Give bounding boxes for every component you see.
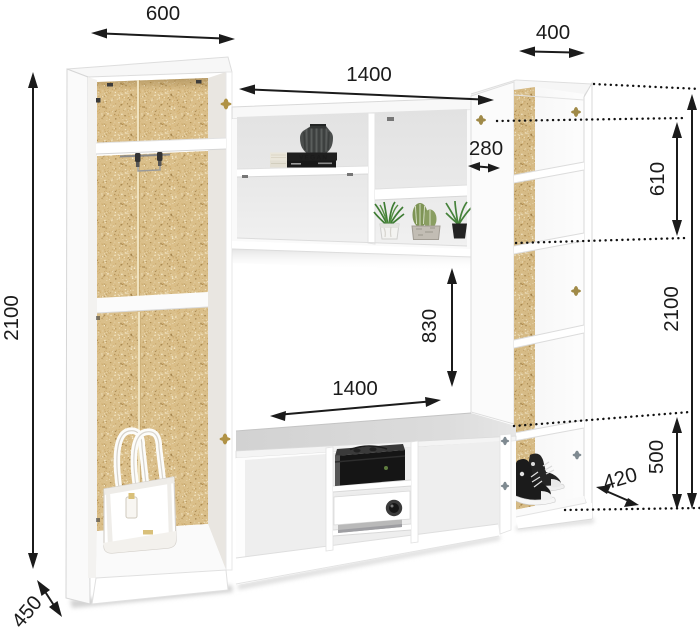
svg-text:500: 500	[645, 440, 668, 474]
svg-text:1400: 1400	[346, 63, 392, 86]
svg-text:2100: 2100	[660, 286, 683, 332]
svg-text:VEGAN: VEGAN	[299, 155, 328, 162]
svg-text:2100: 2100	[0, 295, 23, 341]
svg-text:830: 830	[418, 309, 441, 343]
svg-text:1400: 1400	[332, 377, 378, 400]
svg-text:610: 610	[646, 162, 669, 196]
svg-text:280: 280	[469, 137, 503, 160]
svg-text:600: 600	[146, 2, 180, 25]
svg-text:400: 400	[536, 21, 570, 44]
